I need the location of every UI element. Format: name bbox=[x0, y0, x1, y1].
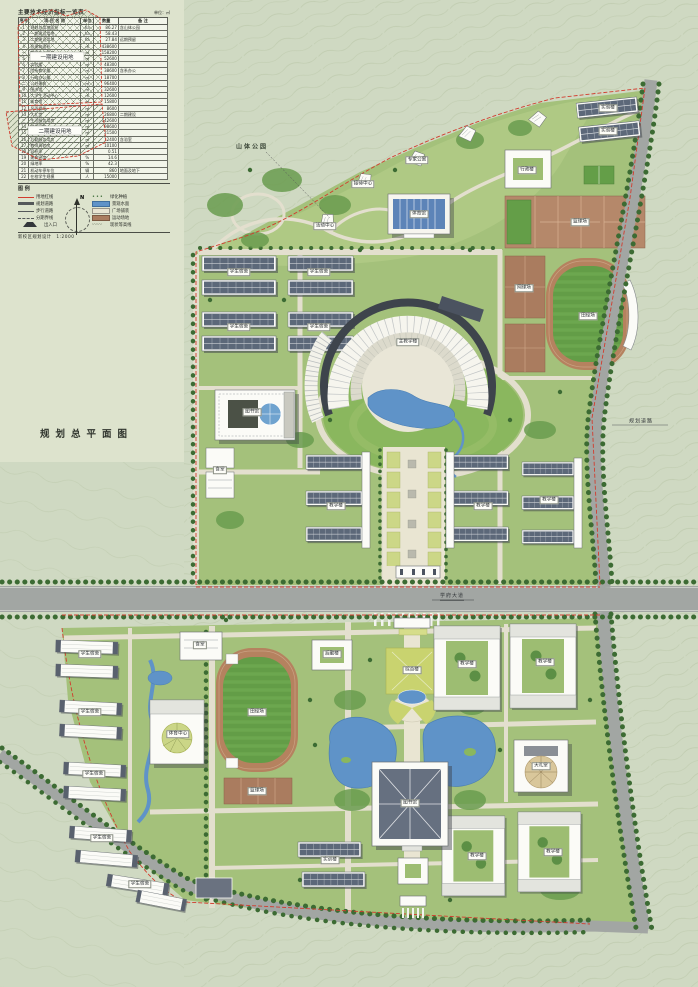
gate-legend-icon bbox=[23, 222, 37, 227]
panel-divider bbox=[18, 232, 170, 233]
compass-north-label: N bbox=[80, 195, 84, 201]
legend-title: 图 例 bbox=[18, 185, 170, 192]
legend-item-label: 分期界线 bbox=[36, 215, 53, 221]
legend-item-label: 景观水面 bbox=[112, 201, 129, 207]
compass-needle bbox=[76, 202, 77, 235]
legend-item-label: 绿化种植 bbox=[110, 194, 127, 200]
legend-item-label: 广场铺装 bbox=[112, 208, 129, 214]
phase2-label: 二期建设用地 bbox=[38, 127, 72, 135]
legend: 图 例 用地红线•••绿化种植规划道路景观水面步行道路广场铺装分期界线运动场地出… bbox=[18, 183, 170, 228]
table-cell: 在校学生规模 bbox=[29, 173, 81, 179]
north-arrow: N bbox=[62, 198, 92, 238]
legend-item-label: 步行道路 bbox=[36, 208, 53, 214]
water-legend-icon bbox=[92, 201, 110, 207]
phasing-key-diagram: 一期建设用地 二期建设用地 bbox=[0, 0, 120, 170]
contour-legend-icon: 〰〰 bbox=[92, 223, 108, 227]
legend-item: 广场铺装 bbox=[92, 207, 168, 214]
redline-legend-icon bbox=[18, 197, 34, 198]
legend-item-label: 规划道路 bbox=[36, 201, 53, 207]
tree-legend-icon: ••• bbox=[92, 195, 108, 199]
legend-item: 运动场地 bbox=[92, 214, 168, 221]
legend-item-label: 运动场地 bbox=[112, 215, 129, 221]
phase1-label: 一期建设用地 bbox=[40, 53, 74, 61]
table-cell bbox=[118, 173, 167, 179]
legend-item-label: 出入口 bbox=[44, 222, 57, 228]
table-unit-note: 单位：㎡ bbox=[154, 10, 170, 16]
legend-item-label: 现状等高线 bbox=[110, 222, 131, 228]
table-header-cell: 备 注 bbox=[118, 18, 167, 25]
road-legend-icon bbox=[18, 202, 34, 205]
compass-circle bbox=[65, 207, 90, 232]
table-cell: 22 bbox=[19, 173, 29, 179]
table-cell: 15000 bbox=[94, 173, 118, 179]
legend-item: 景观水面 bbox=[92, 200, 168, 207]
dash-legend-icon bbox=[18, 218, 34, 219]
panel-note: 新校区规划设计 1:2000 bbox=[18, 234, 170, 240]
legend-item-label: 用地红线 bbox=[36, 194, 53, 200]
plaza-legend-icon bbox=[92, 208, 110, 214]
legend-item: 〰〰现状等高线 bbox=[92, 221, 168, 228]
masterplan-sheet: 体育馆行政楼实验楼实验楼篮球场网球场田径场学生宿舍学生宿舍学生宿舍学生宿舍图书馆… bbox=[0, 0, 698, 987]
legend-item: •••绿化种植 bbox=[92, 193, 168, 200]
table-cell: 人 bbox=[80, 173, 94, 179]
path-legend-icon bbox=[18, 211, 34, 212]
court-legend-icon bbox=[92, 215, 110, 221]
drawing-title: 规划总平面图 bbox=[40, 426, 133, 440]
compass-arrowhead-icon bbox=[74, 198, 80, 205]
table-row: 22在校学生规模人15000 bbox=[19, 173, 168, 179]
